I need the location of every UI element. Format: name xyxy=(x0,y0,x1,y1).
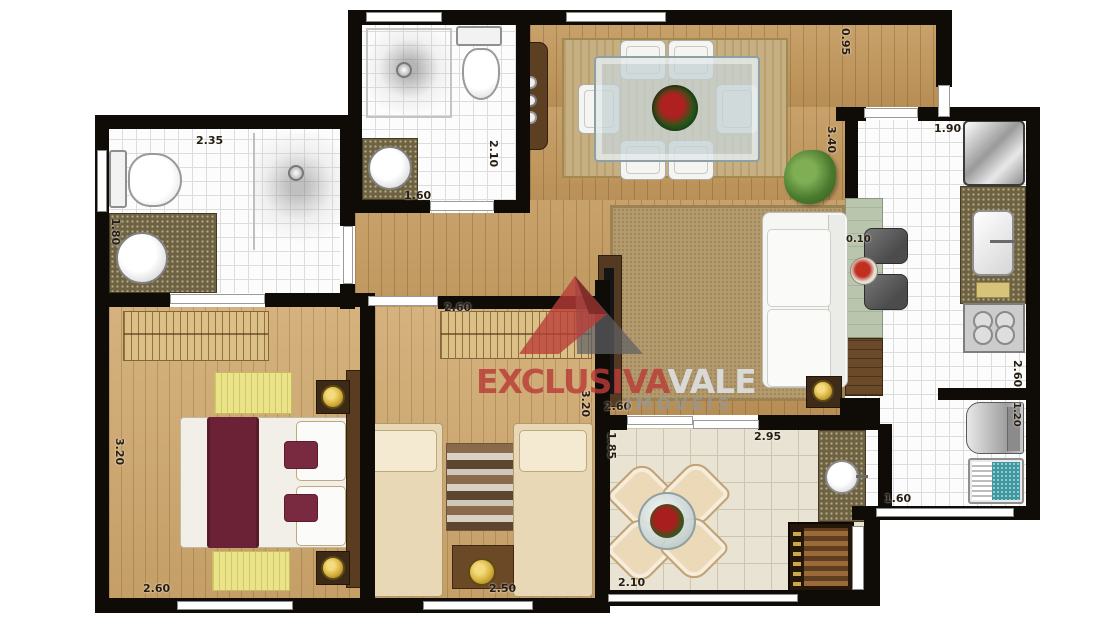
table-lamp xyxy=(321,385,345,409)
wall xyxy=(516,10,530,213)
kitchen-sink xyxy=(972,210,1014,276)
plant xyxy=(784,150,836,204)
balcony-sink xyxy=(825,460,859,494)
grill-knobs xyxy=(793,528,801,586)
wall xyxy=(864,518,880,606)
dim-bed2-width: 2.50 xyxy=(489,582,516,595)
dim-bed2-length: 3.20 xyxy=(579,390,592,417)
wall xyxy=(360,293,375,613)
shower-area xyxy=(253,133,340,250)
dim-living-length: 3.40 xyxy=(825,126,838,153)
washboard xyxy=(972,462,992,500)
bedroom2-wardrobe xyxy=(440,311,592,359)
grill-slats xyxy=(804,528,848,586)
table-lamp xyxy=(321,556,345,580)
wall xyxy=(348,10,362,213)
dim-service-width: 1.60 xyxy=(884,492,911,505)
dim-washer-width: 1.20 xyxy=(1011,402,1022,427)
window xyxy=(423,601,533,610)
wall xyxy=(265,293,375,307)
bedroom2-door xyxy=(368,296,438,306)
tank-basin xyxy=(992,462,1020,500)
floor-plan: 2.35 1.80 2.10 1.60 0.95 3.40 1.90 0.10 … xyxy=(0,0,1120,630)
stove xyxy=(963,303,1025,353)
kitchen-door xyxy=(864,108,918,118)
laundry-tank xyxy=(968,458,1024,504)
bed1-rug xyxy=(212,551,290,591)
bed1-rug xyxy=(214,372,292,414)
bathroom1-door xyxy=(343,226,353,284)
bedroom1-wardrobe xyxy=(123,311,269,361)
wall xyxy=(936,25,952,87)
dim-bath1-depth: 1.80 xyxy=(109,218,122,245)
dim-balcony-width: 2.95 xyxy=(754,430,781,443)
bed-runner xyxy=(207,417,259,548)
window xyxy=(608,594,798,602)
window xyxy=(97,150,107,212)
dim-bed1-length: 3.20 xyxy=(113,438,126,465)
floor-lamp xyxy=(812,380,834,402)
window xyxy=(876,508,1014,517)
toilet-bowl xyxy=(462,48,500,100)
wall xyxy=(95,115,355,129)
barbecue-grill xyxy=(788,522,854,592)
dining-centerpiece-flowers xyxy=(652,85,698,131)
wall xyxy=(95,293,109,613)
accent-cushion xyxy=(284,441,318,469)
dim-bed1-width: 2.60 xyxy=(143,582,170,595)
bedroom1-door xyxy=(170,294,265,304)
dim-bed2-wardrobe: 2.60 xyxy=(444,301,471,314)
burner xyxy=(973,325,993,345)
window xyxy=(177,601,293,610)
wall xyxy=(1026,107,1040,520)
toilet-bowl xyxy=(128,153,182,207)
wall xyxy=(845,120,858,198)
fruit-bowl xyxy=(850,257,878,285)
dim-balcony-depth: 1.85 xyxy=(605,432,618,459)
bathroom2-sink xyxy=(368,146,412,190)
dim-entry-width: 0.95 xyxy=(839,28,852,55)
toilet-tank xyxy=(456,26,502,46)
wall xyxy=(836,107,866,121)
dim-bath2-door: 1.60 xyxy=(404,189,431,202)
wall xyxy=(918,107,1040,121)
wall xyxy=(938,388,1026,400)
sofa-seat-cushion xyxy=(767,229,831,307)
burner xyxy=(995,325,1015,345)
refrigerator xyxy=(963,120,1025,186)
cutting-board xyxy=(976,282,1010,298)
shower-valve xyxy=(288,165,304,181)
balcony-sink-faucet xyxy=(856,475,868,478)
bed-pillow xyxy=(369,430,437,472)
sofa xyxy=(762,212,848,388)
dim-kitchen-length: 2.60 xyxy=(1011,360,1024,387)
toilet-tank xyxy=(109,150,127,208)
dim-bath2-depth: 2.10 xyxy=(487,140,500,167)
dim-counter-overhang: 0.10 xyxy=(846,234,871,245)
dim-bath1-width: 2.35 xyxy=(196,134,223,147)
dim-living-width: 2.60 xyxy=(604,400,631,413)
bathroom2-door xyxy=(430,201,494,211)
window xyxy=(366,12,442,22)
bathroom1-sink xyxy=(116,232,168,284)
shower-head xyxy=(396,62,412,78)
dim-kitchen-width: 1.90 xyxy=(934,122,961,135)
window xyxy=(852,526,864,590)
entry-door xyxy=(938,85,950,117)
balcony-sliding-door xyxy=(627,416,693,425)
bed-pillow xyxy=(519,430,587,472)
bar-cabinet xyxy=(845,338,883,396)
wall xyxy=(758,415,880,430)
balcony-flowers xyxy=(650,504,684,538)
wall xyxy=(595,415,627,430)
window xyxy=(566,12,666,22)
striped-rug xyxy=(446,443,516,531)
accent-cushion xyxy=(284,494,318,522)
balcony-sliding-door xyxy=(693,420,759,429)
kitchen-faucet xyxy=(990,240,1016,243)
dim-balcony-span: 2.10 xyxy=(618,576,645,589)
wall xyxy=(494,200,530,213)
